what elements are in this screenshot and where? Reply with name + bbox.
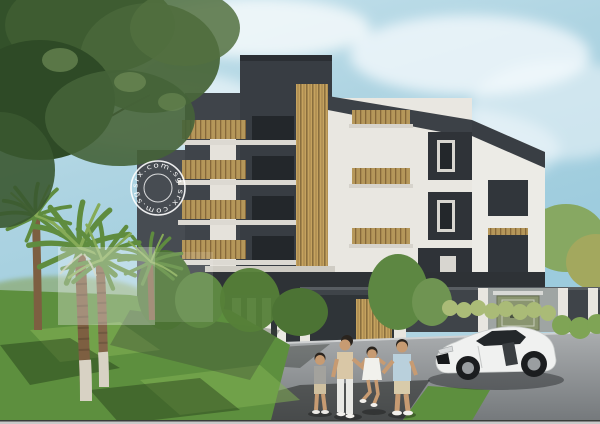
watermark-box [58, 247, 213, 325]
bottom-shadow-line [0, 420, 600, 422]
roof-parapet [240, 55, 332, 61]
rendering-image: 24 [0, 0, 600, 424]
entrance-awning [205, 266, 335, 272]
